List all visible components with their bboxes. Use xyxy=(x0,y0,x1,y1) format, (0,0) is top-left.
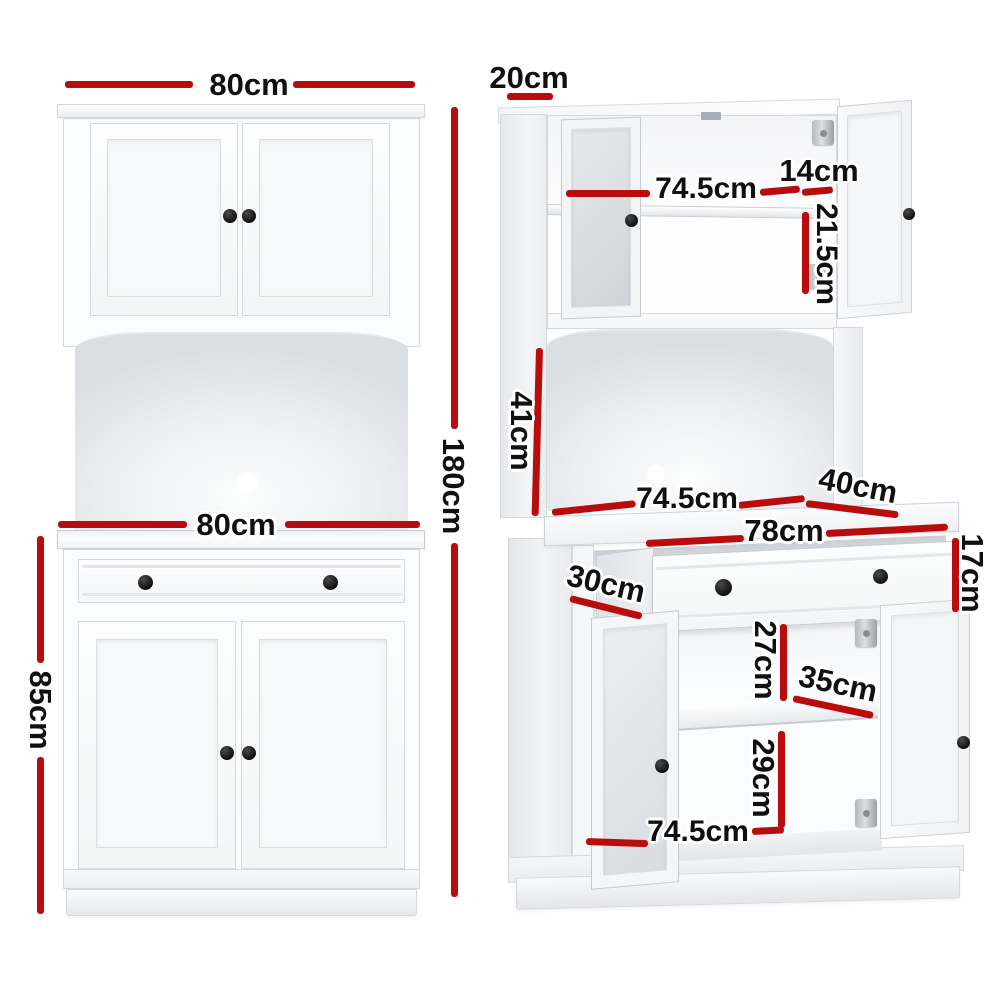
dim-lower-compartment-label: 29cm xyxy=(745,738,781,817)
open-lower-door-left-knob xyxy=(655,759,669,773)
front-drawer-groove xyxy=(82,565,401,569)
open-lower-door-right-knob xyxy=(957,736,970,749)
dim-line xyxy=(37,536,44,663)
front-drawer-knob-left xyxy=(138,575,153,590)
open-hutch-door-left-inner-panel xyxy=(571,127,631,308)
dim-hutch-inner-width-label: 74.5cm xyxy=(655,172,757,206)
open-view-figure: 20cm 74.5cm 14cm 21.5cm 41cm 74.5cm 40cm… xyxy=(480,0,1000,1000)
front-lower-knob-right xyxy=(242,746,256,760)
front-drawer-knob-right xyxy=(323,575,338,590)
front-hutch-crown xyxy=(57,104,425,118)
hinge-icon xyxy=(855,799,877,827)
dim-line xyxy=(285,521,420,528)
vent-slot xyxy=(701,112,721,120)
product-dimension-diagram: 80cm 180cm 80cm 85cm xyxy=(0,0,1000,1000)
front-cable-hole xyxy=(237,472,258,493)
hinge-icon xyxy=(812,120,834,145)
dim-line xyxy=(58,521,187,528)
front-hutch-knob-left xyxy=(223,209,237,223)
dim-drawer-height-label: 17cm xyxy=(954,533,990,612)
open-lower-door-right-inner-panel xyxy=(891,611,959,827)
hinge-pin-icon xyxy=(863,630,870,637)
dim-alcove-height-label: 41cm xyxy=(503,391,539,470)
dim-counter-width-label: 80cm xyxy=(196,507,275,543)
dim-lower-height-label: 85cm xyxy=(22,670,58,749)
open-hutch-door-right-knob xyxy=(903,208,915,220)
open-cable-hole xyxy=(647,465,665,483)
front-lower-door-right-panel xyxy=(259,639,387,848)
dim-line xyxy=(37,757,44,914)
dim-top-width-label: 80cm xyxy=(209,67,288,103)
front-hutch-knob-right xyxy=(242,209,256,223)
open-hutch-door-right-open xyxy=(837,100,912,320)
open-hutch-door-left-knob xyxy=(625,214,638,227)
hinge-icon xyxy=(855,619,877,647)
dim-upper-compartment-label: 27cm xyxy=(747,620,783,699)
open-lower-left-side xyxy=(508,538,572,860)
open-drawer-knob-right xyxy=(873,569,888,584)
hinge-pin-icon xyxy=(863,810,870,817)
front-open-shelf-alcove xyxy=(75,332,408,531)
front-view-figure: 80cm 180cm 80cm 85cm xyxy=(0,0,480,1000)
dim-line xyxy=(65,81,193,88)
dim-line xyxy=(566,190,650,197)
front-hutch-door-right xyxy=(242,123,390,316)
open-drawer-groove xyxy=(656,553,952,571)
dim-total-height-label: 180cm xyxy=(435,438,471,535)
front-lower-knob-left xyxy=(220,746,234,760)
hinge-pin-icon xyxy=(820,130,827,137)
dim-line xyxy=(451,107,458,429)
front-base-rail xyxy=(63,869,420,889)
front-hutch-door-left-panel xyxy=(107,139,221,297)
front-lower-door-right xyxy=(241,621,405,869)
open-hutch-door-right-inner-panel xyxy=(847,111,902,308)
dim-drawer-width-label: 78cm xyxy=(744,513,823,549)
open-lower-door-right-open xyxy=(880,599,970,839)
front-lower-door-left-panel xyxy=(96,639,218,848)
dim-base-inner-width-label: 74.5cm xyxy=(647,815,749,849)
dim-line xyxy=(802,212,809,294)
dim-hutch-door-width-label: 14cm xyxy=(779,153,858,189)
open-drawer-knob-left xyxy=(715,579,732,596)
front-drawer-groove xyxy=(82,593,401,597)
front-lower-door-left xyxy=(78,621,236,869)
front-hutch-door-left xyxy=(90,123,238,316)
front-hutch-door-right-panel xyxy=(259,139,373,297)
front-drawer xyxy=(78,559,405,603)
dim-line xyxy=(293,81,415,88)
dim-hutch-shelf-height-label: 21.5cm xyxy=(809,203,843,305)
dim-top-depth-label: 20cm xyxy=(489,60,568,96)
dim-line xyxy=(451,543,458,897)
dim-alcove-width-label: 74.5cm xyxy=(636,482,738,516)
front-plinth xyxy=(66,889,417,916)
